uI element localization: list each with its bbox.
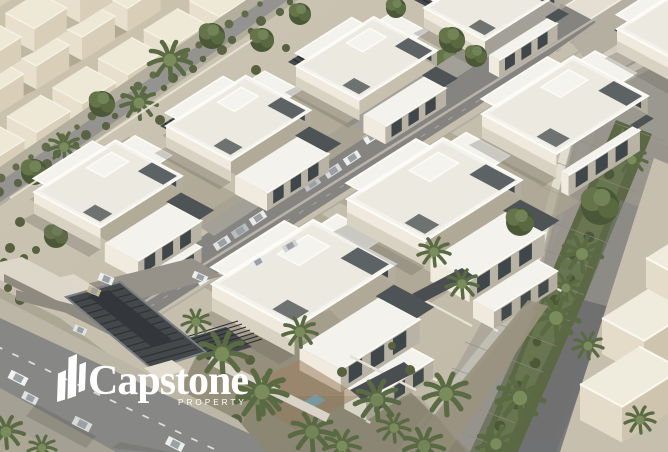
- svg-text:PROPERTY: PROPERTY: [178, 398, 247, 407]
